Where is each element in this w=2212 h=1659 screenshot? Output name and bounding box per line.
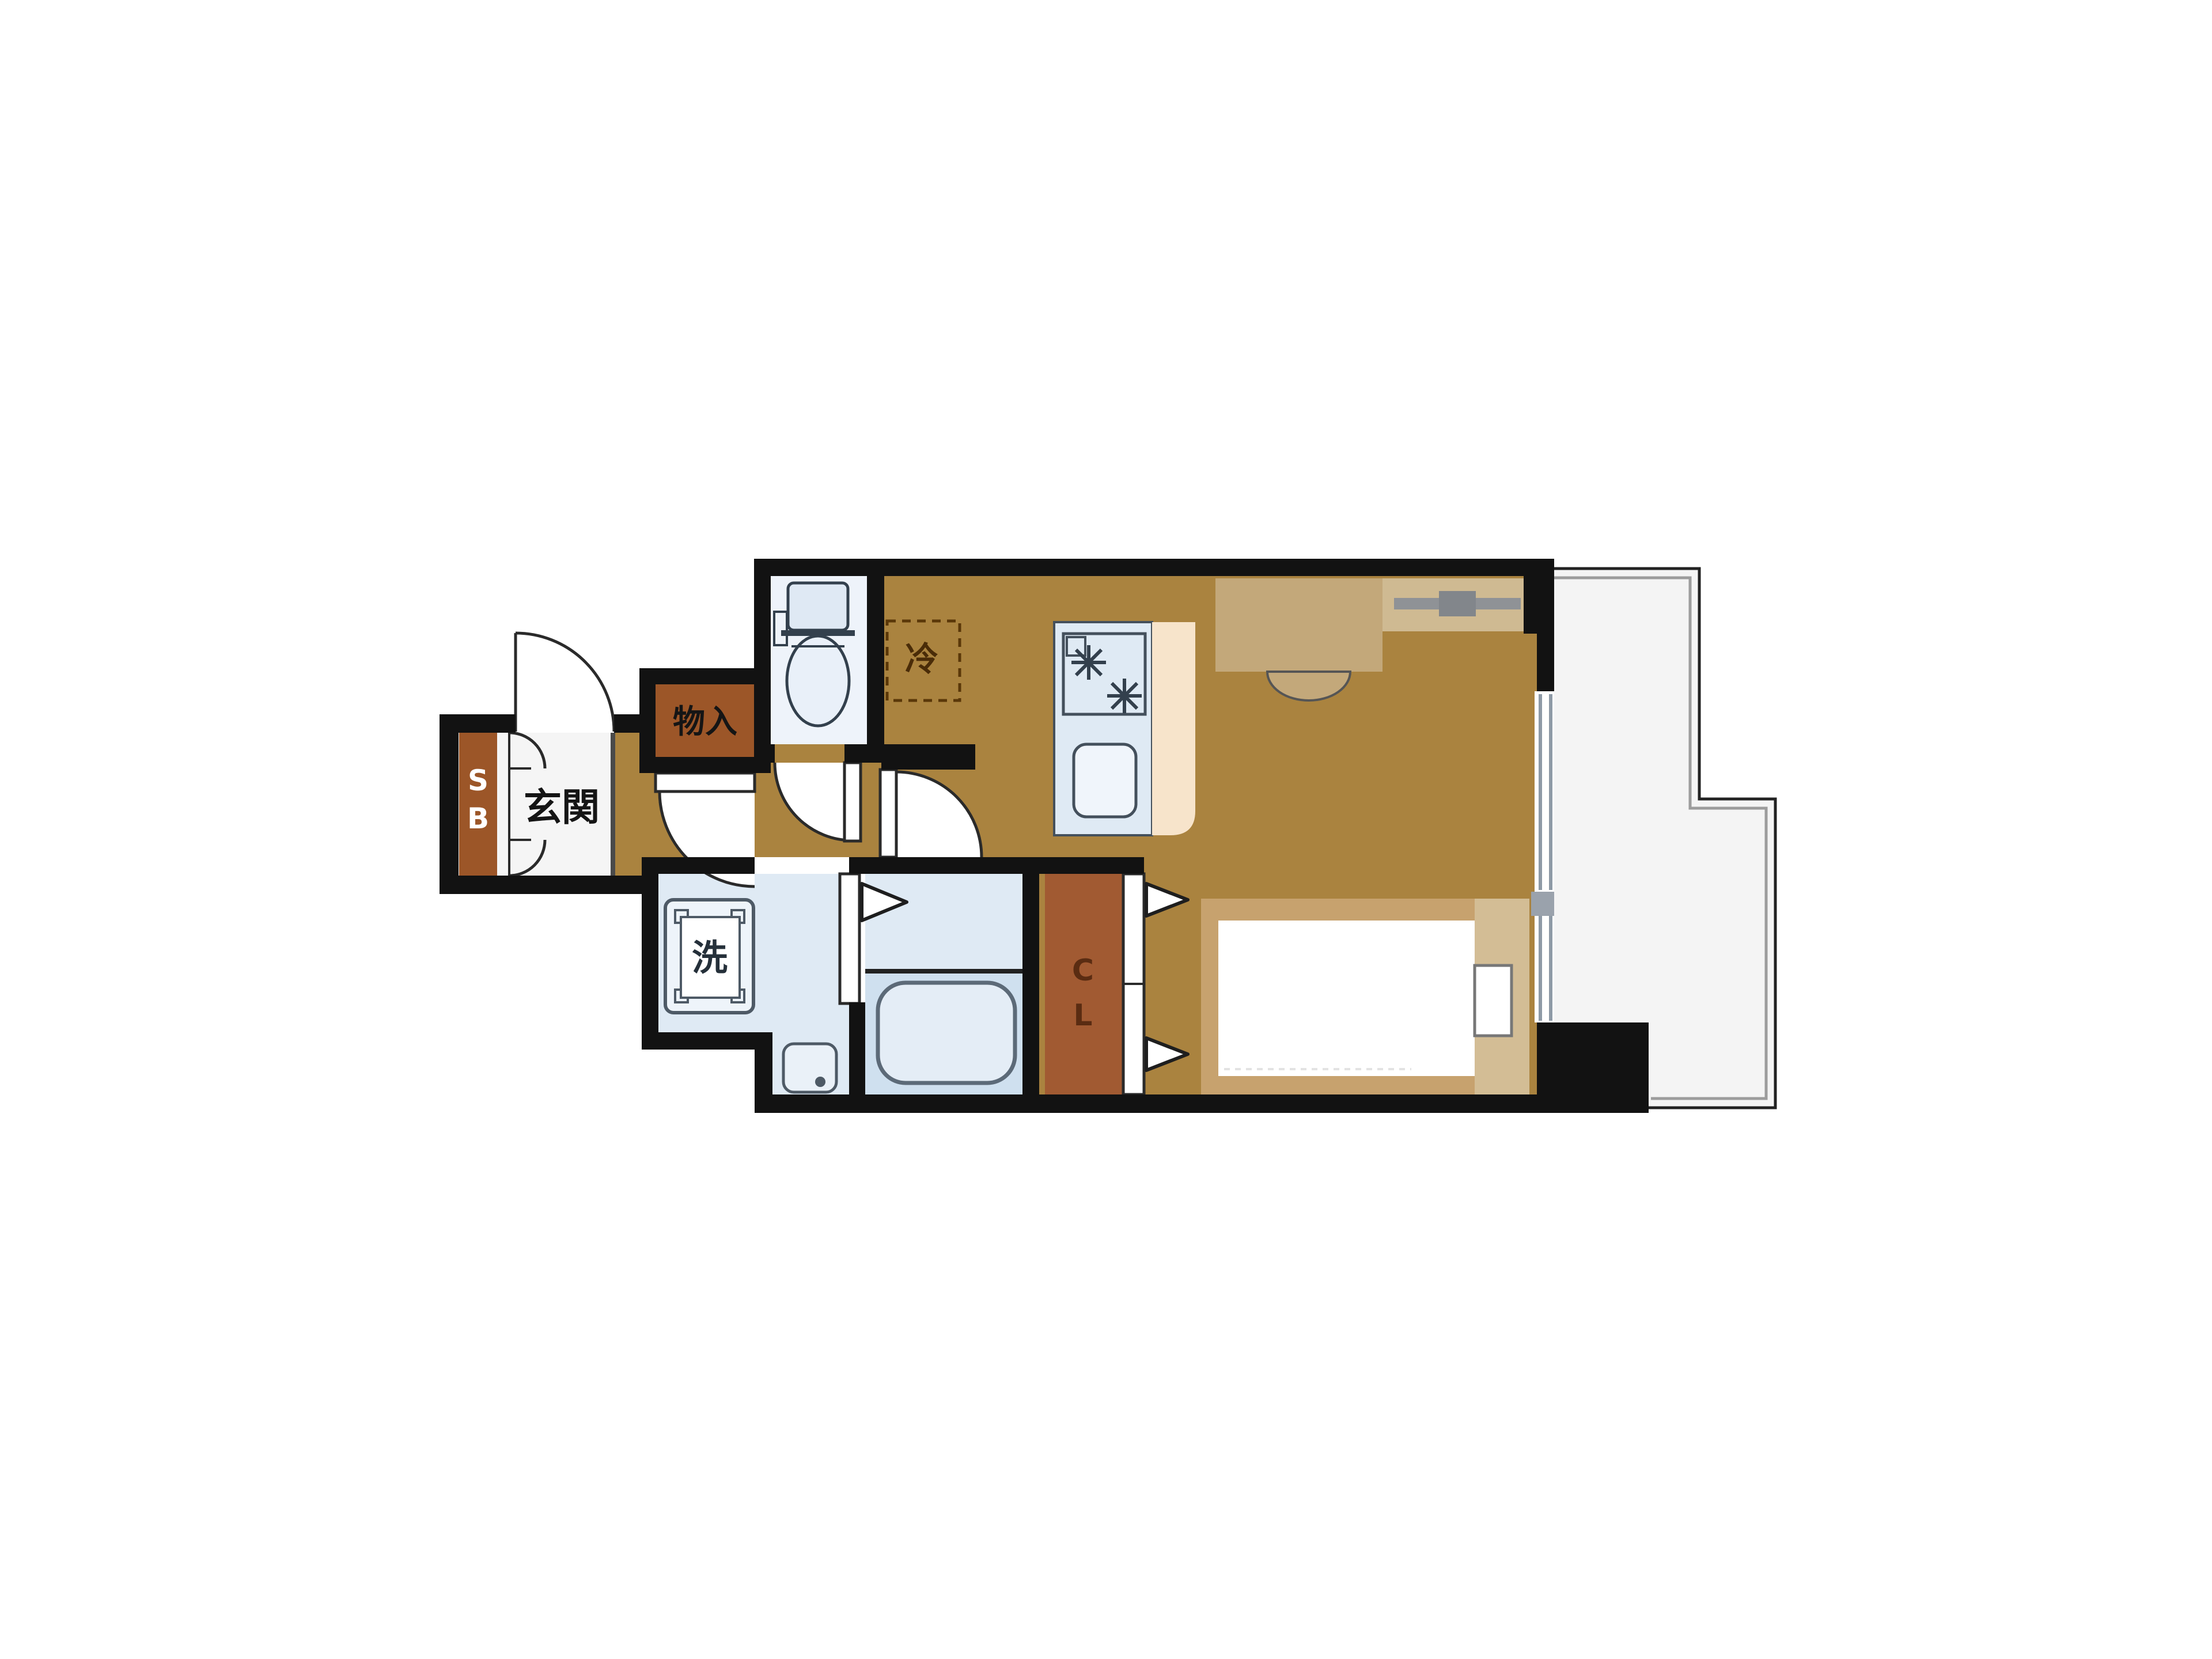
- bathroom-divider-line: [865, 969, 1022, 974]
- hanger-pipe-bracket: [1439, 591, 1476, 616]
- main-room-door-leaf: [880, 770, 896, 857]
- toilet-tank-icon: [788, 583, 848, 630]
- kitchen-sink-icon: [1074, 744, 1136, 817]
- wall-toilet-bottom-right: [844, 744, 884, 763]
- floor-plan-canvas: 玄関 物入 S B 洗 冷 C L: [0, 0, 2212, 1659]
- wall-bottom: [755, 1094, 1649, 1113]
- bed-mattress: [1218, 921, 1475, 1076]
- entrance-label: 玄関: [524, 785, 600, 829]
- wall-washroom-lower-left: [755, 1050, 772, 1097]
- wall-washroom-top: [642, 857, 755, 874]
- washer-label: 洗: [692, 937, 728, 979]
- wall-washroom-step: [642, 1032, 772, 1050]
- wall-entrance-left: [440, 714, 459, 894]
- wall-entrance-top-right: [614, 714, 642, 733]
- wall-washroom-left: [642, 857, 658, 1050]
- entrance-step-line: [611, 733, 615, 877]
- window-opening: [1535, 691, 1556, 1022]
- wall-bath-closet-top: [849, 857, 1144, 874]
- wall-pillar: [1537, 1022, 1649, 1113]
- vanity-sink-icon: [783, 1044, 836, 1092]
- shoe-box-label-b: B: [467, 802, 489, 835]
- closet-label-c: C: [1072, 953, 1094, 988]
- entrance-door-arc: [516, 633, 614, 732]
- washroom-door-leaf: [840, 874, 859, 1003]
- bathtub-icon: [878, 983, 1015, 1083]
- washroom-door-gap: [755, 857, 849, 874]
- wall-doorway-header: [881, 744, 975, 770]
- wall-top: [754, 559, 1554, 576]
- toilet-door-leaf: [844, 763, 861, 841]
- toilet-bowl-icon: [787, 636, 849, 726]
- closet-label-l: L: [1073, 998, 1092, 1033]
- wall-toilet-bottom-left: [754, 744, 775, 763]
- wall-toilet-left: [754, 576, 771, 763]
- sink-drain-icon: [815, 1077, 825, 1087]
- kitchen-counter-panel: [1152, 622, 1195, 835]
- refrigerator-label: 冷: [905, 639, 938, 679]
- storage-door-leaf: [656, 773, 755, 791]
- bed-pillow: [1475, 965, 1512, 1036]
- shoe-box-label-s: S: [468, 764, 488, 797]
- desk-counter: [1215, 578, 1382, 672]
- wall-bath-right: [1022, 874, 1039, 1097]
- floor-plan: 玄関 物入 S B 洗 冷 C L: [0, 0, 2212, 1659]
- wall-right-corner: [1524, 559, 1554, 634]
- wall-entrance-bottom: [440, 876, 658, 894]
- wall-toilet-right: [867, 576, 884, 744]
- wall-bath-left: [849, 1002, 865, 1097]
- storage-label: 物入: [673, 703, 737, 741]
